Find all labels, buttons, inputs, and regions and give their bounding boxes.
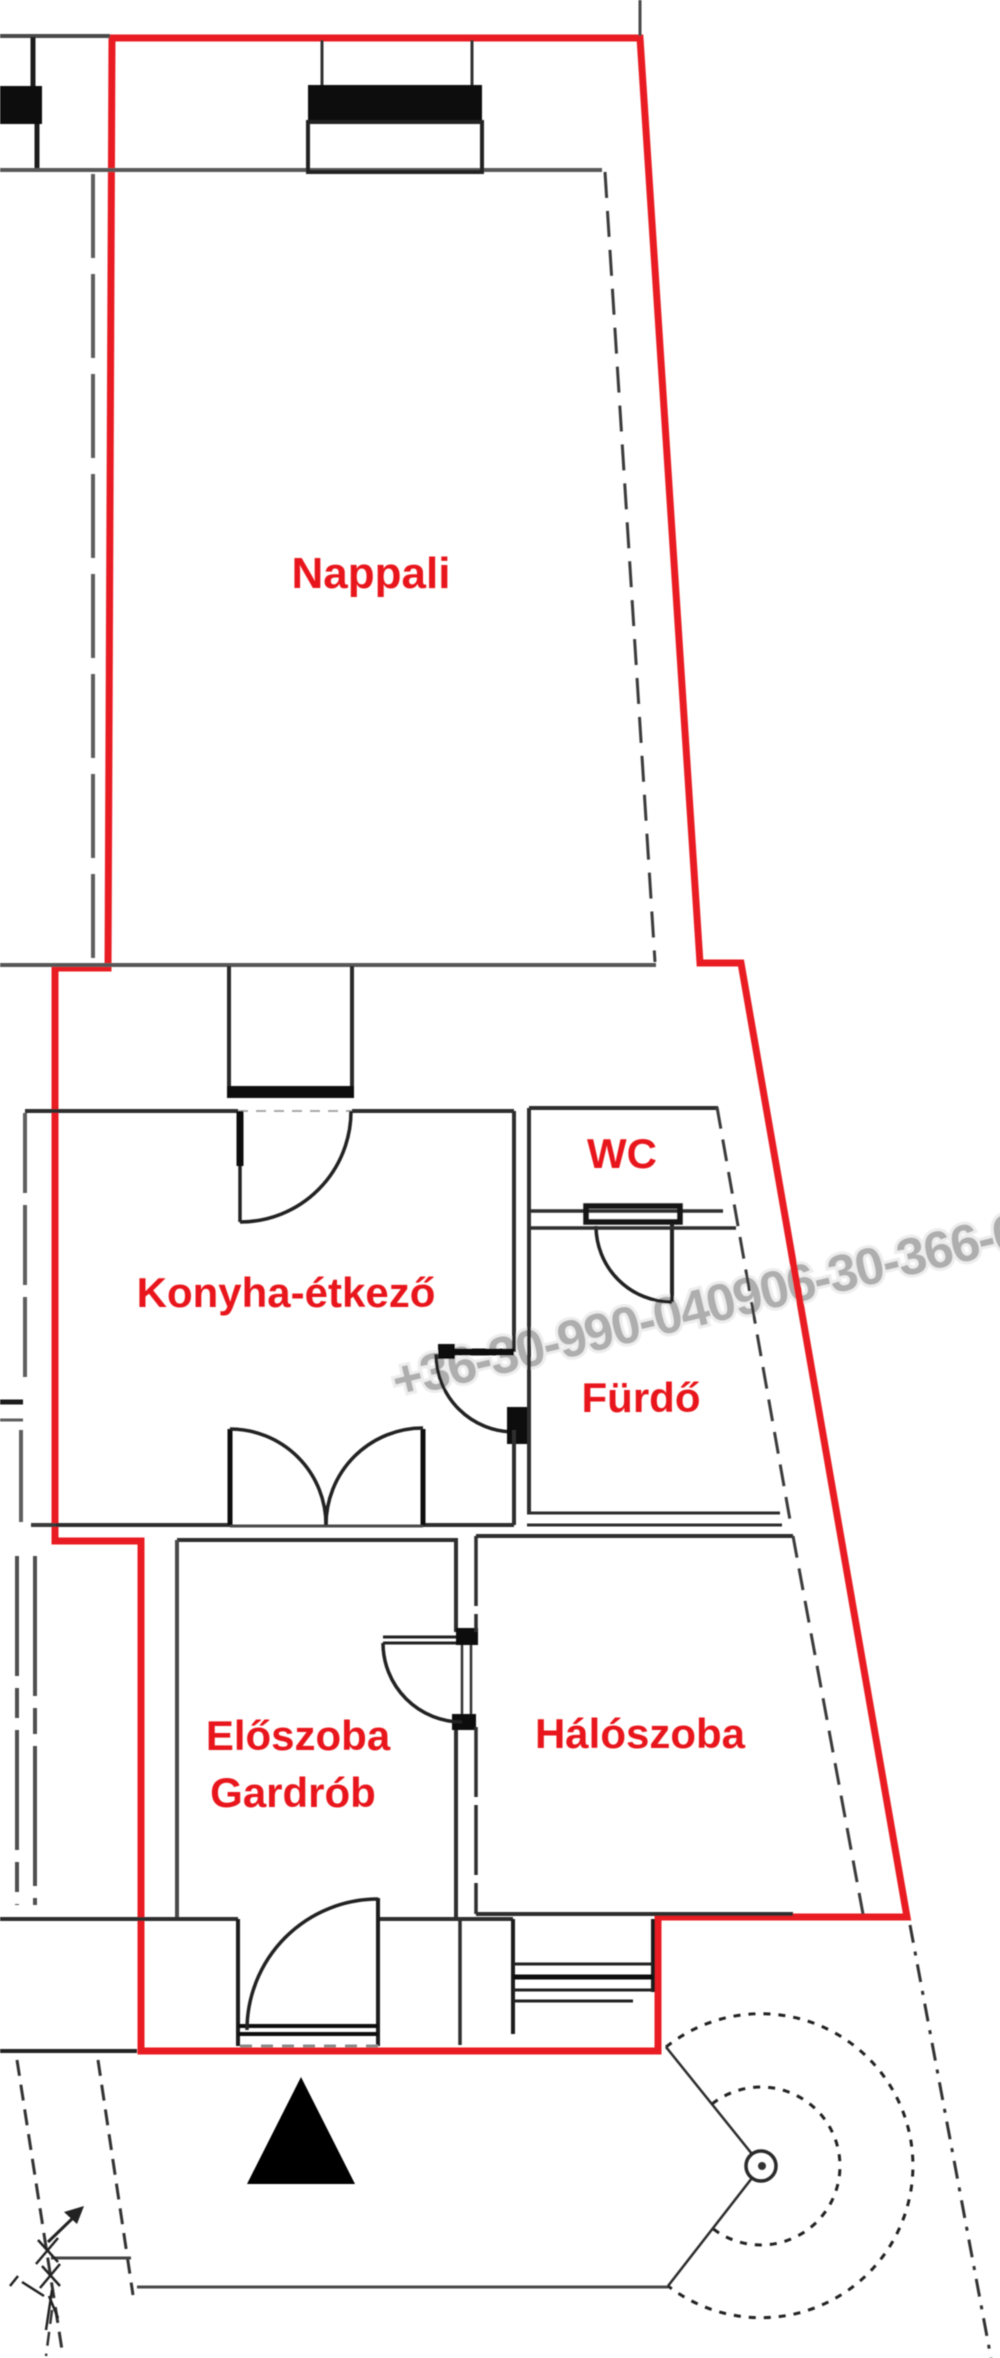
svg-text:WC: WC bbox=[587, 1130, 657, 1177]
svg-text:Konyha-étkező: Konyha-étkező bbox=[137, 1269, 436, 1316]
svg-text:Nappali: Nappali bbox=[292, 549, 451, 598]
svg-text:Gardrób: Gardrób bbox=[210, 1769, 376, 1816]
svg-text:Hálószoba: Hálószoba bbox=[535, 1710, 746, 1757]
svg-text:Előszoba: Előszoba bbox=[206, 1712, 391, 1759]
svg-text:Fürdő: Fürdő bbox=[582, 1374, 701, 1421]
